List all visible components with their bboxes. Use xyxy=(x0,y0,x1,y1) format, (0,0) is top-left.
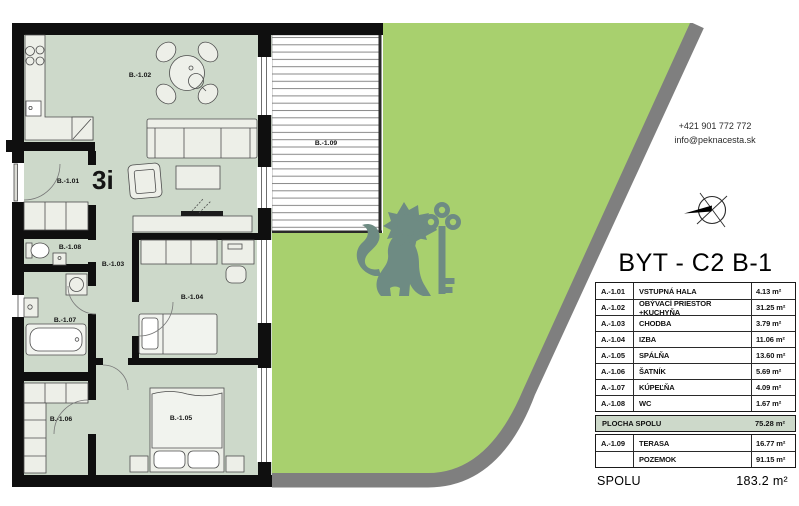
table-row: A.-1.03CHODBA3.79 m² xyxy=(596,315,795,331)
room-name: ŠATNÍK xyxy=(634,364,752,379)
apartment-type-badge: 3i xyxy=(92,165,114,195)
terrace-door xyxy=(257,167,272,208)
coffee-table xyxy=(176,166,220,189)
room-area: 91.15 m² xyxy=(752,452,795,467)
room-area: 16.77 m² xyxy=(752,435,795,451)
room-name: TERASA xyxy=(634,435,752,451)
room-wardrobe xyxy=(141,240,217,264)
total-area-row: PLOCHA SPOLU 75.28 m² xyxy=(595,415,796,432)
table-row: A.-1.05SPÁLŇA13.60 m² xyxy=(596,347,795,363)
bath-sink xyxy=(24,298,38,317)
contact-block: +421 901 772 772 info@peknacesta.sk xyxy=(640,120,790,147)
room-area: 3.79 m² xyxy=(752,316,795,331)
room-code: A.-1.06 xyxy=(596,364,634,379)
room-code: A.-1.09 xyxy=(596,435,634,451)
room-area: 1.67 m² xyxy=(752,396,795,411)
room-name: KÚPEĽŇA xyxy=(634,380,752,395)
grand-total-value: 183.2 m² xyxy=(736,474,796,488)
label-bath: B.-1.07 xyxy=(54,317,77,324)
room-name: WC xyxy=(634,396,752,411)
room-name: POZEMOK xyxy=(634,452,752,467)
table-row: POZEMOK91.15 m² xyxy=(596,451,795,467)
desk xyxy=(222,240,254,264)
room-code: A.-1.05 xyxy=(596,348,634,363)
room-name: OBÝVACÍ PRIESTOR +KUCHYŇA xyxy=(634,300,752,315)
room-area: 31.25 m² xyxy=(752,300,795,315)
label-living: B.-1.02 xyxy=(129,72,152,79)
armchair xyxy=(128,163,163,200)
floorplan-sheet: B.-1.02 B.-1.01 B.-1.03 B.-1.04 B.-1.05 … xyxy=(0,0,799,506)
entrance-door xyxy=(12,163,24,202)
total-area-label: PLOCHA SPOLU xyxy=(596,419,661,428)
outdoor-area-table: A.-1.09TERASA16.77 m² POZEMOK91.15 m² xyxy=(595,434,796,468)
table-row: A.-1.04IZBA11.06 m² xyxy=(596,331,795,347)
room-code xyxy=(596,452,634,467)
room-area: 5.69 m² xyxy=(752,364,795,379)
grand-total-row: SPOLU 183.2 m² xyxy=(595,474,796,488)
sofa xyxy=(147,119,257,158)
grand-total-label: SPOLU xyxy=(595,474,641,488)
room-name: VSTUPNÁ HALA xyxy=(634,283,752,299)
label-room: B.-1.04 xyxy=(181,294,204,301)
label-hall: B.-1.01 xyxy=(57,178,80,185)
room-name: IZBA xyxy=(634,332,752,347)
room-area: 11.06 m² xyxy=(752,332,795,347)
double-bed xyxy=(150,388,224,472)
hall-wardrobe xyxy=(24,202,88,230)
compass-icon xyxy=(684,193,727,227)
total-area-value: 75.28 m² xyxy=(755,419,785,428)
washing-machine xyxy=(66,274,87,295)
room-code: A.-1.04 xyxy=(596,332,634,347)
table-row: A.-1.06ŠATNÍK5.69 m² xyxy=(596,363,795,379)
room-code: A.-1.01 xyxy=(596,283,634,299)
desk-chair xyxy=(226,266,246,283)
wc-basin xyxy=(53,253,66,265)
unit-title: BYT - C2 B-1 xyxy=(595,249,796,278)
top-mask xyxy=(380,0,799,23)
contact-phone: +421 901 772 772 xyxy=(640,120,790,134)
label-bedroom: B.-1.05 xyxy=(170,415,193,422)
window-living xyxy=(257,57,272,115)
table-row: A.-1.09TERASA16.77 m² xyxy=(596,435,795,451)
room-code: A.-1.03 xyxy=(596,316,634,331)
label-terrace: B.-1.09 xyxy=(315,140,338,147)
table-row: A.-1.01VSTUPNÁ HALA4.13 m² xyxy=(596,283,795,299)
room-area: 4.13 m² xyxy=(752,283,795,299)
terrace-deck xyxy=(272,23,382,233)
label-wc: B.-1.08 xyxy=(59,244,82,251)
table-row: A.-1.07KÚPEĽŇA4.09 m² xyxy=(596,379,795,395)
room-area: 13.60 m² xyxy=(752,348,795,363)
label-corridor: B.-1.03 xyxy=(102,261,125,268)
window-room xyxy=(257,240,272,323)
room-code: A.-1.08 xyxy=(596,396,634,411)
contact-email: info@peknacesta.sk xyxy=(640,134,790,148)
room-name: SPÁLŇA xyxy=(634,348,752,363)
nightstand-left xyxy=(130,456,148,472)
toilet xyxy=(26,243,49,258)
room-code: A.-1.07 xyxy=(596,380,634,395)
rooms-area-table: A.-1.01VSTUPNÁ HALA4.13 m² A.-1.02OBÝVAC… xyxy=(595,282,796,412)
room-name: CHODBA xyxy=(634,316,752,331)
label-closet: B.-1.06 xyxy=(50,416,73,423)
window-bedroom xyxy=(257,368,272,462)
room-code: A.-1.02 xyxy=(596,300,634,315)
room-area: 4.09 m² xyxy=(752,380,795,395)
window-bath xyxy=(12,295,24,317)
nightstand-right xyxy=(226,456,244,472)
table-row: A.-1.02OBÝVACÍ PRIESTOR +KUCHYŇA31.25 m² xyxy=(596,299,795,315)
table-row: A.-1.08WC1.67 m² xyxy=(596,395,795,411)
bathtub xyxy=(26,324,86,355)
